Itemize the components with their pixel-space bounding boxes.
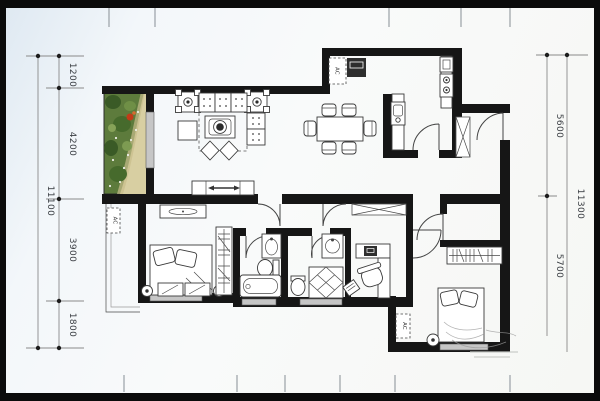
dim-right-total: 11300 xyxy=(575,189,585,220)
bed-secondary xyxy=(150,245,212,296)
bathroom-2 xyxy=(291,234,343,298)
ac-box-balcony: AC xyxy=(107,208,120,233)
dim-left-segment-2: 4200 xyxy=(67,132,77,157)
fan xyxy=(427,334,439,346)
ac-label-master: AC xyxy=(401,322,407,330)
water-heater xyxy=(347,58,366,77)
wardrobe-secondary xyxy=(216,227,232,295)
wardrobe-master xyxy=(447,247,502,264)
windows xyxy=(146,112,488,350)
dim-left-segment-3: 3900 xyxy=(67,238,77,263)
shower xyxy=(309,267,343,298)
dining-table xyxy=(304,104,376,154)
stove xyxy=(440,74,453,97)
ac-box-master: AC xyxy=(396,314,410,338)
dresser xyxy=(160,205,206,218)
floor-plan-image: 1200 4200 3900 1800 11100 5600 5700 1130… xyxy=(0,0,600,401)
dim-right-segment-2: 5700 xyxy=(554,254,564,279)
entry-closet xyxy=(456,117,470,157)
floor-plan-svg: 1200 4200 3900 1800 11100 5600 5700 1130… xyxy=(0,0,600,401)
kitchen-sink xyxy=(391,102,405,125)
watermark-smudge xyxy=(470,352,518,357)
ac-label-kitchen: AC xyxy=(334,67,340,75)
master-suite: AC xyxy=(396,247,518,357)
bedroom-secondary xyxy=(142,205,233,297)
dim-left-total: 11100 xyxy=(45,186,55,217)
toilet-1 xyxy=(258,260,280,277)
bathtub xyxy=(240,275,281,297)
sofa-set xyxy=(176,90,270,161)
dim-left-segment-4: 1800 xyxy=(67,313,77,338)
ac-box-kitchen: AC xyxy=(329,58,346,84)
fridge xyxy=(440,57,453,72)
corridor-closet xyxy=(352,204,406,215)
sink-2 xyxy=(322,234,343,258)
garden-photo xyxy=(104,92,146,194)
sink-1 xyxy=(262,234,281,258)
toilet-2 xyxy=(291,276,305,296)
dim-right-segment-1: 5600 xyxy=(554,114,564,139)
dim-left-segment-1: 1200 xyxy=(67,63,77,88)
tv-cabinet xyxy=(192,181,254,195)
ac-label-balcony: AC xyxy=(112,217,118,225)
